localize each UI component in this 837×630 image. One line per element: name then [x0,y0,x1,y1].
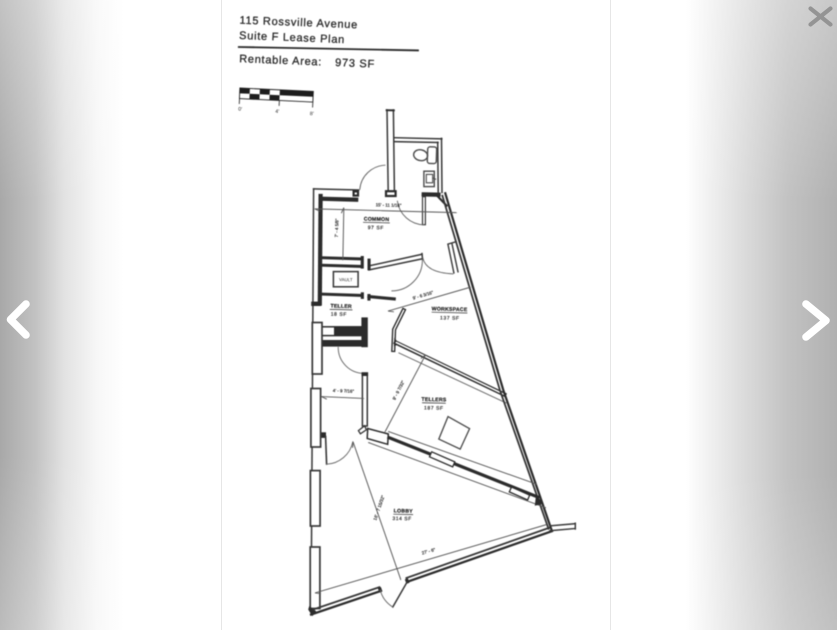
svg-text:LOBBY: LOBBY [394,508,414,514]
svg-text:0': 0' [238,107,242,113]
svg-text:4': 4' [275,109,279,115]
svg-text:187 SF: 187 SF [424,405,444,411]
svg-text:15' - 11 1/16": 15' - 11 1/16" [376,202,402,208]
svg-text:27' - 6": 27' - 6" [421,547,436,556]
svg-text:115 Rossville Avenue: 115 Rossville Avenue [239,15,358,32]
svg-text:VAULT: VAULT [339,277,353,282]
svg-text:Suite F Lease Plan: Suite F Lease Plan [239,30,345,46]
svg-text:8': 8' [310,111,314,117]
svg-text:137 SF: 137 SF [440,315,460,321]
svg-text:4' - 9 7/16": 4' - 9 7/16" [333,388,355,394]
svg-text:18 SF: 18 SF [331,312,347,318]
svg-text:97 SF: 97 SF [368,225,384,231]
svg-text:973 SF: 973 SF [335,57,375,71]
svg-text:314 SF: 314 SF [392,516,412,522]
svg-text:TELLER: TELLER [330,304,352,310]
svg-text:Rentable Area:: Rentable Area: [239,53,322,68]
svg-text:9' - 9 7/32": 9' - 9 7/32" [392,379,406,401]
svg-text:7' - 4 5/8": 7' - 4 5/8" [334,218,340,237]
